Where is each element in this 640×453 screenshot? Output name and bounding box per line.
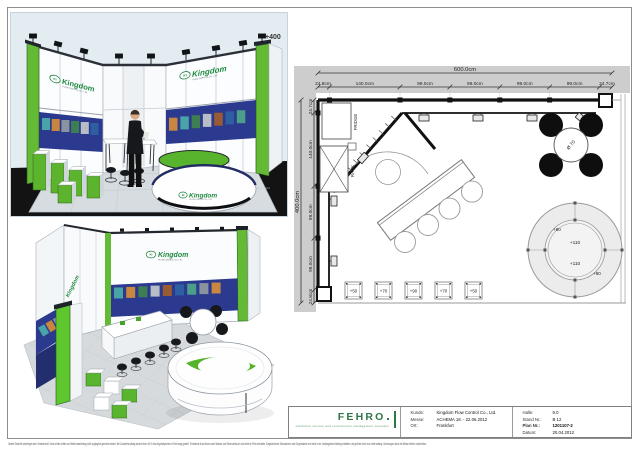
svg-text:+110: +110	[570, 261, 581, 267]
fehro-logo: FEHRO	[289, 412, 389, 422]
field-value: 9.0	[553, 410, 559, 417]
field-value: ACHEMA 18. - 22.06.2012	[437, 417, 488, 424]
svg-text:FLOW CONTROL CO., LTD.: FLOW CONTROL CO., LTD.	[190, 199, 213, 201]
svg-text:+110: +110	[570, 240, 581, 246]
svg-text:+50: +50	[470, 289, 478, 294]
render-3d-front-svg: KI Kingdom FLOW CONTROL CO., LTD. KI Kin…	[11, 13, 287, 216]
svg-text:99.0cm: 99.0cm	[517, 81, 533, 87]
svg-text:+90: +90	[410, 289, 418, 294]
svg-text:+70: +70	[380, 289, 388, 294]
svg-text:+70: +70	[440, 289, 448, 294]
plan-sheet: KI Kingdom FLOW CONTROL CO., LTD. KI Kin…	[0, 0, 640, 453]
svg-text:24.8cm: 24.8cm	[308, 289, 314, 305]
svg-text:KI: KI	[183, 73, 186, 78]
title-block-project-column: Kunde:Kingdom Flow Control Co., Ltd. Mes…	[400, 407, 512, 437]
svg-text:24.8cm: 24.8cm	[315, 81, 331, 87]
green-rule	[394, 411, 396, 428]
svg-text:KI: KI	[150, 253, 153, 257]
title-block-plan-column: Halle:9.0 Stand Nr.:B 12 Plan Nr.:120110…	[512, 407, 630, 437]
green-post-front	[56, 305, 70, 405]
disclaimer-text: Unsere Entwürfe unterliegen dem Urheberr…	[8, 442, 635, 446]
svg-text:99.0cm: 99.0cm	[308, 256, 314, 272]
svg-text:24.7cm: 24.7cm	[599, 81, 615, 87]
svg-text:140.0cm: 140.0cm	[356, 81, 374, 87]
svg-text:+80: +80	[593, 271, 601, 276]
svg-text:+50: +50	[350, 289, 358, 294]
plan-circular-counter: +80 +110 +110 +80	[527, 202, 624, 299]
svg-text:99.0cm: 99.0cm	[417, 81, 433, 87]
field-label: Plan Nr.:	[523, 423, 553, 430]
svg-text:99.0cm: 99.0cm	[567, 81, 583, 87]
svg-text:FLOW CONTROL CO., LTD.: FLOW CONTROL CO., LTD.	[159, 259, 184, 261]
plan-round-table: Ø 70	[539, 113, 603, 177]
field-value: 1201107-2	[553, 423, 573, 430]
svg-text:RACK: RACK	[350, 165, 355, 177]
plan-bar-counter	[376, 160, 483, 253]
plan-podiums: +50 +70 +90 +70 +50	[345, 282, 482, 299]
svg-text:140.0cm: 140.0cm	[308, 140, 314, 158]
field-value: 20.04.2012	[553, 430, 575, 437]
render-3d-top-svg: Kingdom KI Kingdom FLOW CONTROL CO., LTD…	[10, 217, 284, 431]
title-block: FEHRO exhibition service and constructio…	[288, 406, 632, 438]
svg-text:99.0cm: 99.0cm	[308, 204, 314, 220]
field-label: Datum:	[523, 430, 553, 437]
floor-plan: 600.0cm 24.8cm 140.0cm 99.0cm 99.0cm 99.…	[288, 58, 636, 338]
svg-text:24.7cm: 24.7cm	[308, 99, 314, 115]
corner-post-top-right	[599, 94, 612, 107]
svg-text:Kingdom: Kingdom	[158, 252, 188, 259]
svg-text:600.0cm: 600.0cm	[454, 67, 476, 73]
circular-counter-top	[166, 342, 274, 423]
render-3d-front: KI Kingdom FLOW CONTROL CO., LTD. KI Kin…	[10, 12, 288, 217]
corner-post-bottom-left	[317, 287, 331, 301]
field-value: Kingdom Flow Control Co., Ltd.	[437, 410, 497, 417]
field-label: Ort:	[411, 423, 437, 430]
field-value: Frankfurt	[437, 423, 454, 430]
field-value: B 12	[553, 417, 562, 424]
fehro-tagline: exhibition service and construction mana…	[289, 424, 389, 428]
svg-text:KI: KI	[182, 193, 185, 197]
field-label: Kunde:	[411, 410, 437, 417]
render-3d-top: Kingdom KI Kingdom FLOW CONTROL CO., LTD…	[10, 217, 284, 431]
svg-text:+80: +80	[553, 227, 561, 232]
field-label: Stand Nr.:	[523, 417, 553, 424]
field-label: Halle:	[523, 410, 553, 417]
svg-text:KI: KI	[53, 77, 56, 82]
fehro-logo-cell: FEHRO exhibition service and constructio…	[289, 407, 391, 437]
rack: RACK	[320, 143, 356, 192]
svg-text:400.0cm: 400.0cm	[295, 191, 301, 213]
svg-text:99.0cm: 99.0cm	[467, 81, 483, 87]
svg-text:FRIDGE: FRIDGE	[353, 114, 358, 131]
field-label: Messe:	[411, 417, 437, 424]
fehro-logo-dot	[387, 418, 390, 421]
fridge: FRIDGE	[322, 103, 358, 139]
elevation-label: +400	[265, 34, 281, 41]
